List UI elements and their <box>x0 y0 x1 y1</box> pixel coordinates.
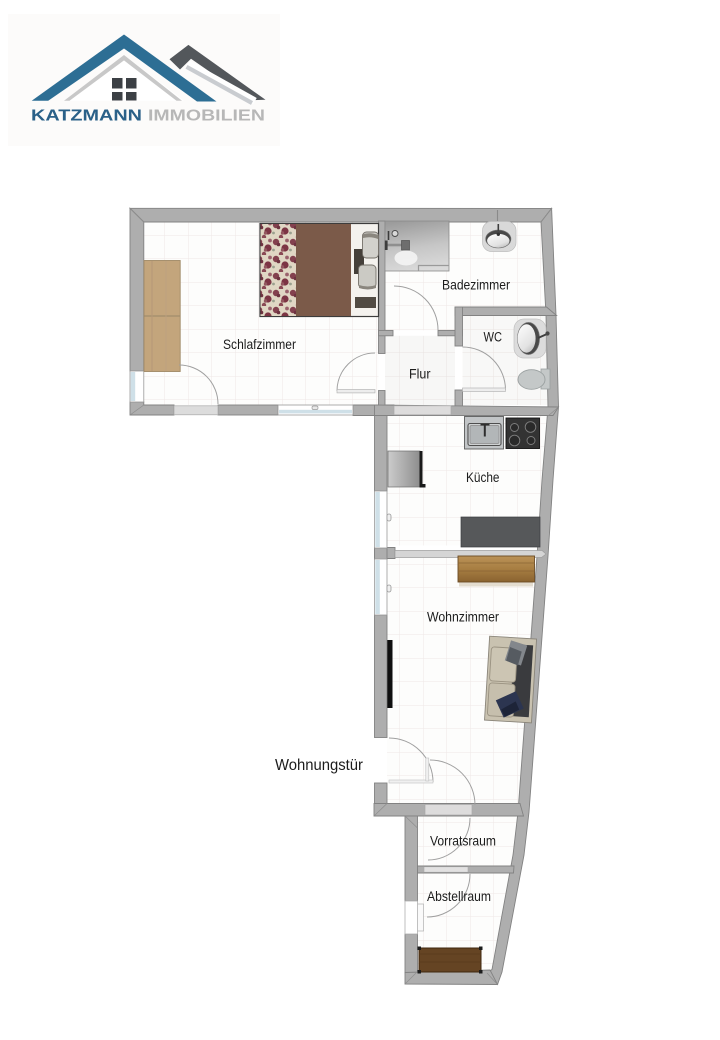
svg-text:Wohnungstür: Wohnungstür <box>275 757 363 774</box>
svg-text:WC: WC <box>484 330 503 345</box>
svg-text:Vorratsraum: Vorratsraum <box>430 833 496 849</box>
svg-text:KATZMANN: KATZMANN <box>31 108 142 125</box>
svg-text:Flur: Flur <box>409 366 431 382</box>
svg-text:Wohnzimmer: Wohnzimmer <box>427 609 499 625</box>
svg-text:Badezimmer: Badezimmer <box>442 277 510 293</box>
svg-text:Schlafzimmer: Schlafzimmer <box>223 336 296 352</box>
svg-text:Abstellraum: Abstellraum <box>427 888 491 904</box>
svg-text:Küche: Küche <box>466 469 500 485</box>
svg-text:IMMOBILIEN: IMMOBILIEN <box>148 108 265 125</box>
